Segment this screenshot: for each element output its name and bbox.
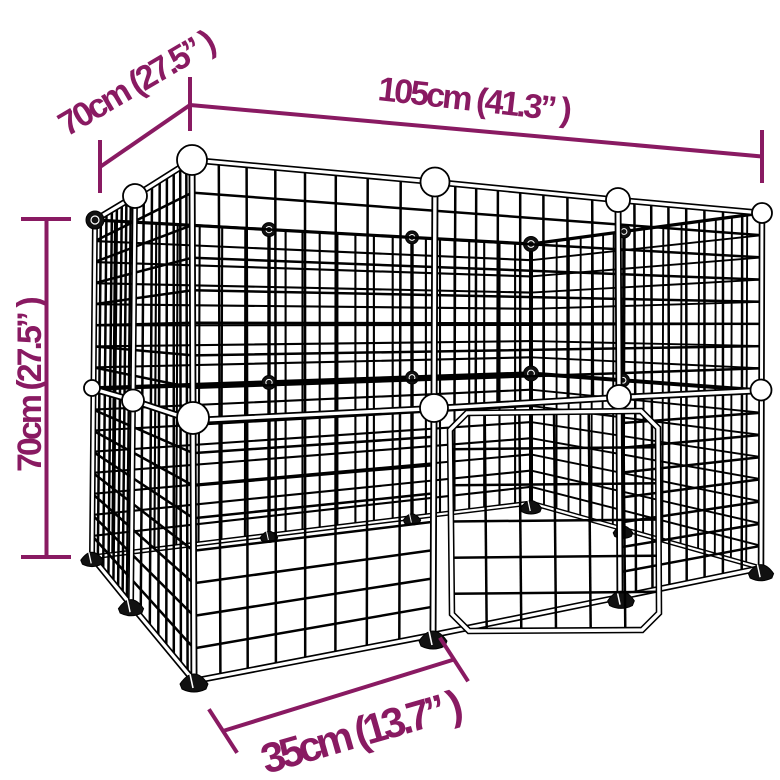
svg-text:70cm (27.5” ): 70cm (27.5” ): [11, 298, 49, 472]
